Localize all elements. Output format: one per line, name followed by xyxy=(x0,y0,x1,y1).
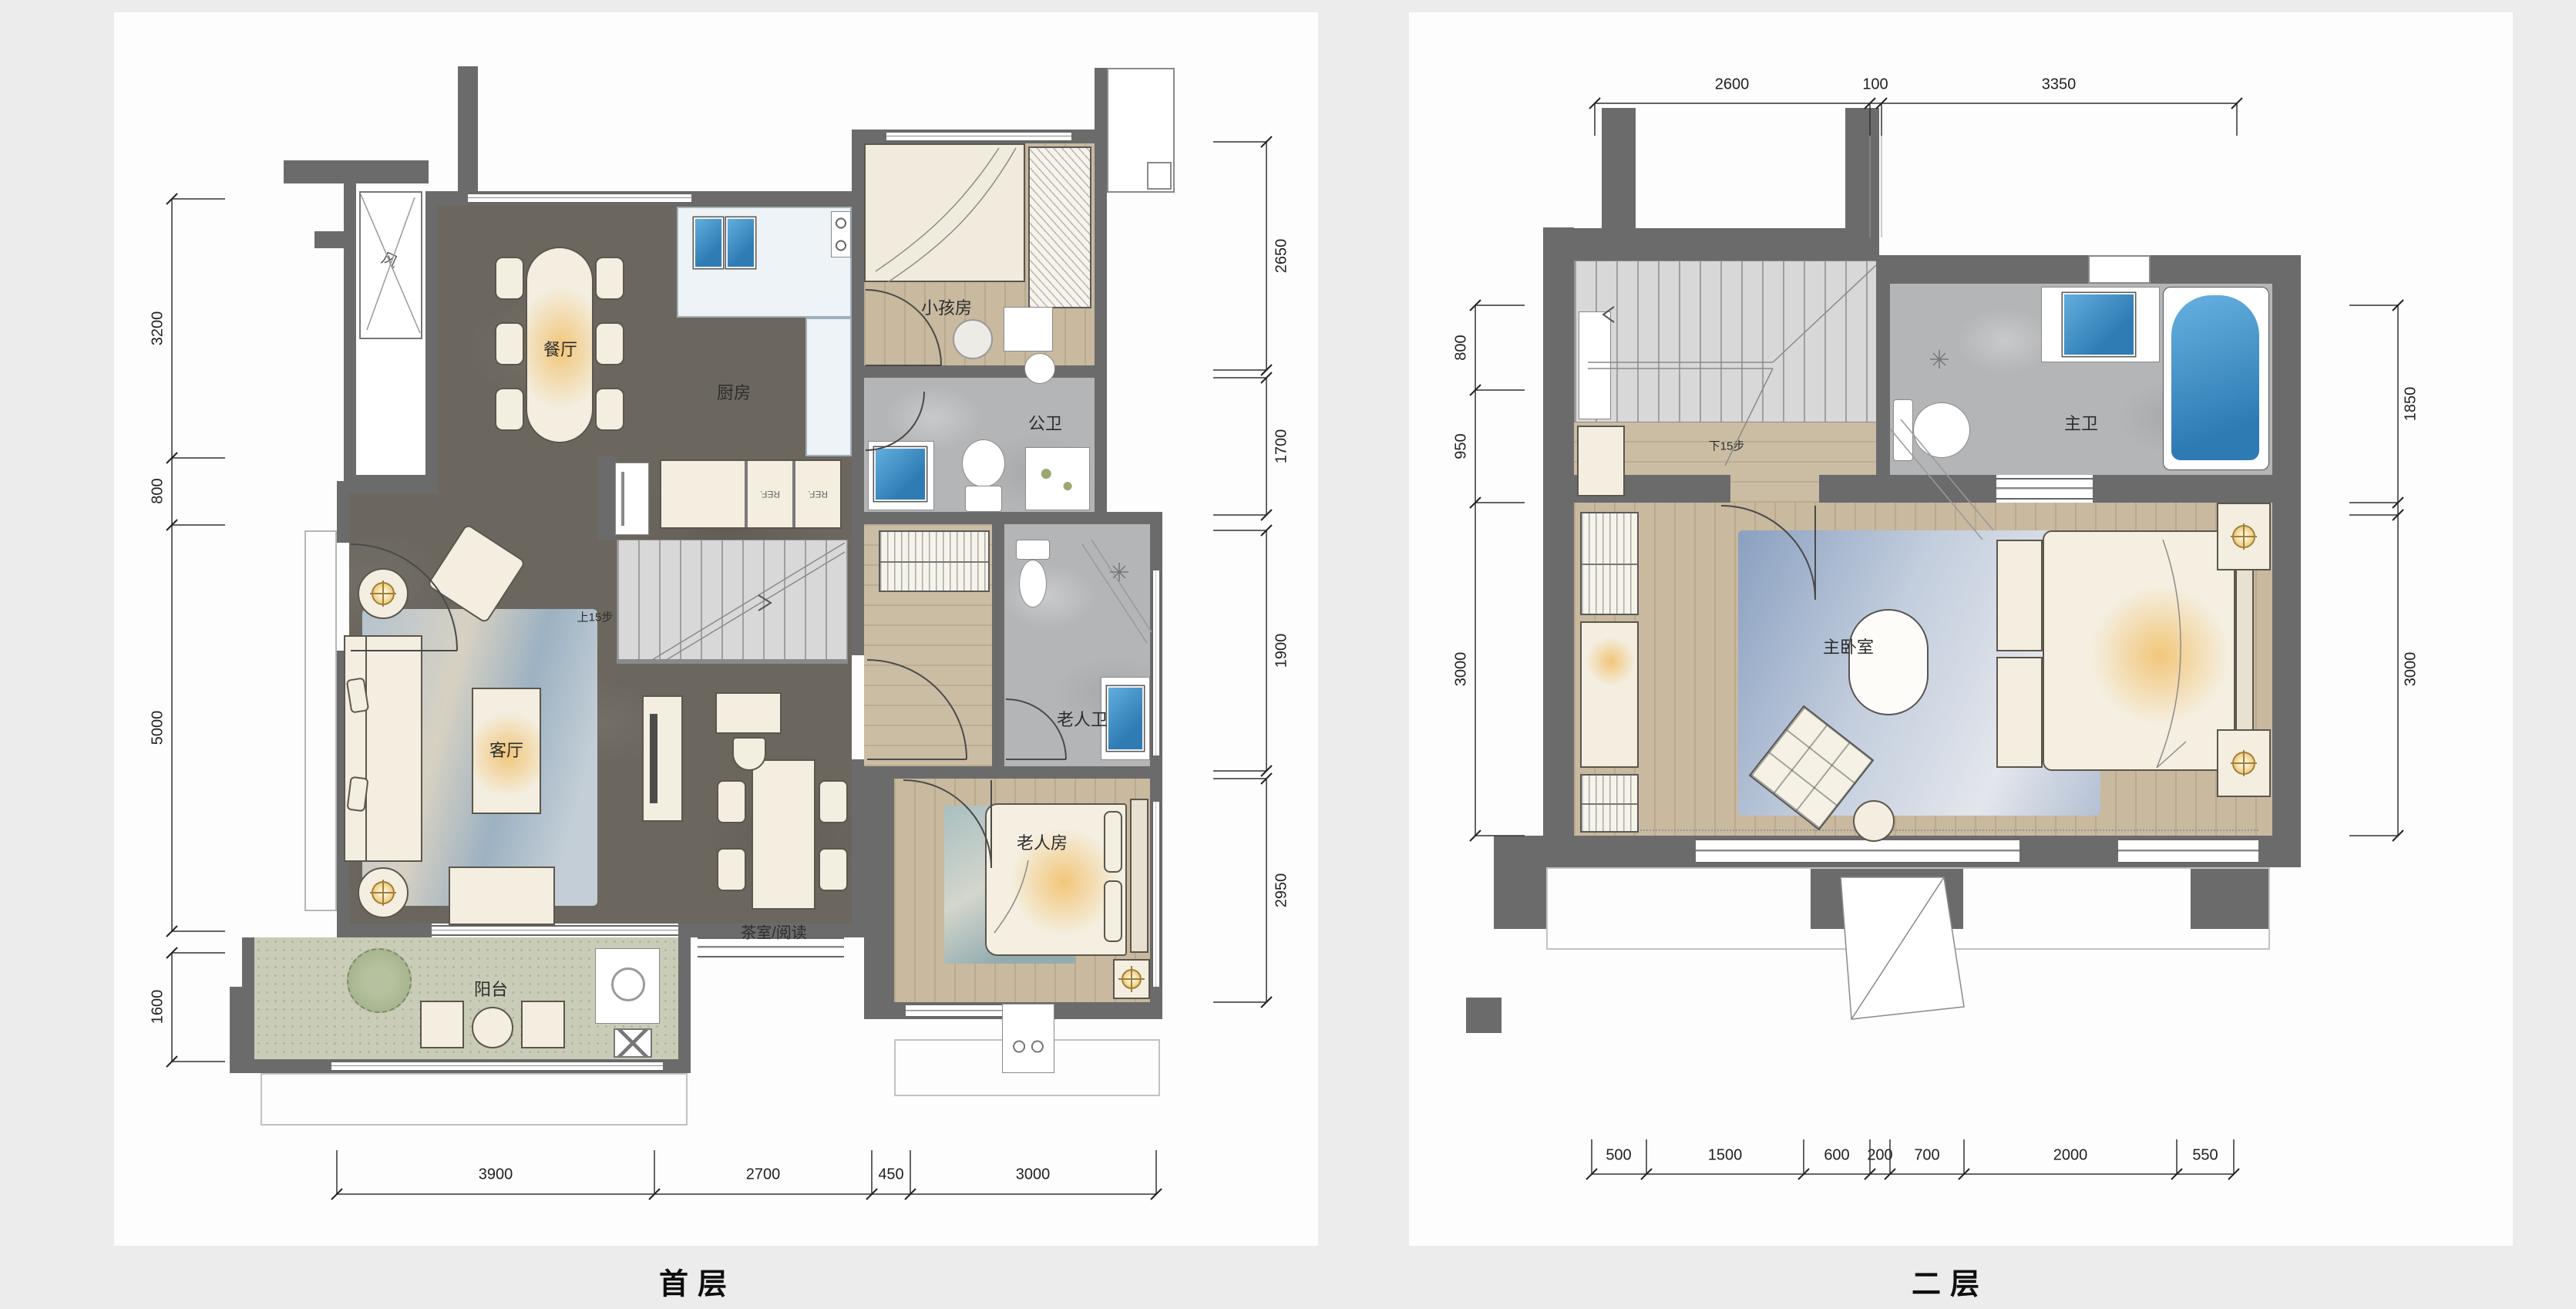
dim-label: 1850 xyxy=(2403,387,2420,422)
elder-bath-sink xyxy=(1107,686,1144,751)
wall xyxy=(2093,475,2301,503)
reading-desk xyxy=(715,692,782,734)
room-label-public-bath: 公卫 xyxy=(1028,410,1062,435)
wall xyxy=(1574,228,1879,261)
bedroom-window xyxy=(1696,839,2019,863)
toilet-bowl xyxy=(962,439,1005,487)
floorplan-sheet: REF. REF. xyxy=(0,0,2576,1309)
bed-glow xyxy=(2090,586,2229,725)
balcony-window xyxy=(331,1061,663,1072)
tall-cabinet xyxy=(615,463,649,535)
stool xyxy=(1853,800,1895,842)
wall xyxy=(337,493,349,543)
kitchen-hob-small xyxy=(831,211,851,257)
dim-label: 2600 xyxy=(1715,76,1750,94)
wall xyxy=(314,231,344,248)
wall xyxy=(344,475,429,487)
floor1-title: 首层 xyxy=(659,1260,736,1303)
dining-chair xyxy=(495,257,524,300)
floor-drain xyxy=(614,1028,652,1058)
dim-label: 2650 xyxy=(1273,239,1291,274)
dim-label: 700 xyxy=(1914,1147,1939,1165)
dining-window xyxy=(468,193,691,204)
toilet-bowl xyxy=(1913,402,1970,458)
kids-wardrobe xyxy=(1028,146,1091,308)
wall xyxy=(425,191,438,493)
room-label-tea: 茶室/阅读 xyxy=(741,920,807,943)
elder-dresser xyxy=(1002,1004,1054,1073)
dim-label: 3200 xyxy=(150,311,167,346)
dim-label: 100 xyxy=(1862,76,1888,94)
wall xyxy=(852,143,864,655)
wall xyxy=(1466,998,1502,1033)
wall xyxy=(1095,68,1107,130)
room-label-kitchen: 厨房 xyxy=(717,379,751,404)
dim-label: 600 xyxy=(1824,1147,1849,1165)
dim-label: 3350 xyxy=(2042,76,2077,94)
balcony-chair xyxy=(420,1001,464,1048)
wall xyxy=(337,924,432,937)
dim-label: 3000 xyxy=(1016,1166,1051,1184)
table-lamp-icon xyxy=(372,881,395,904)
dim-label: 2000 xyxy=(2053,1147,2088,1165)
wall-stub xyxy=(1845,108,1879,255)
dining-chair xyxy=(595,388,624,431)
wall xyxy=(992,524,1004,779)
balcony-chair xyxy=(521,1001,565,1048)
wall xyxy=(678,937,691,1059)
cabinet-divider xyxy=(792,461,795,527)
tea-table xyxy=(752,759,816,910)
room-label-master-bedroom: 主卧室 xyxy=(1823,634,1874,658)
toilet-tank xyxy=(1016,540,1050,560)
wall xyxy=(1543,227,1574,867)
tv-screen xyxy=(650,714,657,803)
tea-chair xyxy=(819,848,848,891)
pillow xyxy=(1104,880,1122,942)
wardrobe xyxy=(1580,512,1639,615)
dim-label: 1600 xyxy=(150,990,167,1025)
fridge-label: REF. xyxy=(760,489,780,500)
tea-chair xyxy=(819,780,848,823)
dim-label: 500 xyxy=(1606,1147,1631,1165)
master-bed xyxy=(2043,530,2235,771)
kitchen-side-counter xyxy=(805,318,852,456)
bed-bench xyxy=(1996,657,2043,768)
wall-stub xyxy=(1602,108,1636,228)
stairs-down-label: 下15步 xyxy=(1709,438,1745,454)
dim-label: 3900 xyxy=(479,1166,513,1184)
wall xyxy=(344,183,356,487)
dim-label: 3000 xyxy=(1453,652,1471,687)
balcony-table xyxy=(472,1007,513,1048)
plant xyxy=(347,948,412,1013)
bay-window-sill xyxy=(304,530,337,911)
wall xyxy=(864,766,1150,779)
room-label-living: 客厅 xyxy=(489,737,523,762)
dim-label: 550 xyxy=(2192,1147,2218,1165)
corridor-closet xyxy=(879,530,990,592)
dim-label: 2950 xyxy=(1273,873,1291,908)
cabinet-handle xyxy=(621,472,624,526)
nightstand-lamp-icon xyxy=(1122,969,1142,989)
washing-machine xyxy=(595,948,660,1024)
sofa-back-line xyxy=(365,637,367,860)
stair-side-shelf xyxy=(1579,311,1611,419)
roof-outline-balcony xyxy=(261,1073,688,1126)
bathtub-water xyxy=(2171,295,2259,460)
dim-label: 1500 xyxy=(1708,1147,1743,1165)
stairs-up-label: 上15步 xyxy=(577,609,614,625)
cabinet-divider xyxy=(745,461,748,527)
nightstand xyxy=(1113,959,1150,999)
room-label-master-bath: 主卫 xyxy=(2064,410,2098,435)
toilet-tank xyxy=(1893,399,1913,461)
wall xyxy=(458,66,478,205)
stairs1-floor xyxy=(617,540,848,660)
wall xyxy=(1095,130,1107,518)
nightstand-lamp-icon xyxy=(2232,752,2255,775)
wall-column xyxy=(597,456,617,540)
dim-label: 2700 xyxy=(746,1166,781,1184)
wall xyxy=(1876,261,1890,475)
wall xyxy=(1819,475,1996,503)
desk-chair xyxy=(732,737,766,771)
kids-window xyxy=(886,131,1071,142)
dresser xyxy=(1580,621,1639,768)
nightstand xyxy=(2217,503,2271,570)
dim-label: 950 xyxy=(1453,433,1471,459)
master-bath-sink xyxy=(2063,293,2135,356)
public-bath-sink xyxy=(874,447,926,501)
toilet-bowl xyxy=(1019,560,1047,607)
room-label-balcony: 阳台 xyxy=(474,976,508,1001)
kids-bed xyxy=(864,143,1025,282)
wall xyxy=(2272,284,2301,867)
wall xyxy=(1494,836,1546,929)
roof-outline xyxy=(1546,867,2270,950)
side-table xyxy=(358,568,409,619)
wall xyxy=(864,365,1095,378)
room-label-kids: 小孩房 xyxy=(921,294,972,319)
bath-window xyxy=(2088,255,2151,284)
dining-chair xyxy=(595,257,624,300)
ac-unit xyxy=(1147,162,1172,190)
sofa xyxy=(344,635,422,862)
dim-label: 1900 xyxy=(1273,634,1291,668)
dining-chair xyxy=(495,322,524,365)
wall xyxy=(284,160,429,183)
toilet-tank xyxy=(965,486,1002,512)
balcony-sliding-door xyxy=(432,925,678,936)
kitchen-sink-bowl xyxy=(726,217,755,268)
side-table xyxy=(358,867,409,918)
kids-desk xyxy=(1004,307,1053,352)
kids-rug xyxy=(953,319,993,359)
room-label-dining: 餐厅 xyxy=(543,336,577,361)
dim-label: 200 xyxy=(1867,1147,1892,1165)
wall xyxy=(230,987,254,1073)
nightstand xyxy=(2217,729,2271,797)
headboard xyxy=(1130,799,1148,953)
stairs2-floor xyxy=(1574,261,1879,422)
elder-bath-window xyxy=(1152,570,1161,755)
dim-label: 1700 xyxy=(1273,429,1291,464)
pillow xyxy=(1104,811,1122,873)
kids-chair xyxy=(1024,353,1055,384)
room-label-elder-bath: 老人卫 xyxy=(1057,706,1108,731)
dim-label: 800 xyxy=(1453,335,1471,360)
table-lamp-icon xyxy=(372,582,395,605)
bedroom-table xyxy=(1848,609,1929,715)
dim-label: 800 xyxy=(150,478,167,503)
washer-drum xyxy=(611,967,645,1001)
kitchen-sink-bowl xyxy=(694,217,723,268)
ottoman xyxy=(449,866,555,925)
bath-door-sill xyxy=(1996,478,2093,500)
fridge-label: REF. xyxy=(808,489,828,500)
nightstand-lamp-icon xyxy=(2232,525,2255,548)
hall-cabinet xyxy=(1577,426,1625,496)
dresser-glow xyxy=(1586,637,1636,686)
stair-edge xyxy=(617,660,848,664)
wardrobe xyxy=(1580,774,1639,833)
bath-vanity xyxy=(1025,447,1090,510)
tea-chair xyxy=(717,780,746,823)
dim-label: 5000 xyxy=(150,711,167,745)
room-label-elder-room: 老人房 xyxy=(1017,829,1068,854)
elder-room-window xyxy=(906,1004,1002,1018)
curtain-line xyxy=(1588,829,2258,831)
dim-label: 450 xyxy=(878,1166,903,1184)
wall xyxy=(852,759,864,924)
tv-console xyxy=(642,695,683,822)
elder-room-side-window xyxy=(1152,802,1161,987)
tea-chair xyxy=(717,848,746,891)
floor2-title: 二层 xyxy=(1912,1260,1989,1303)
bedroom-window xyxy=(2118,839,2258,863)
dining-chair xyxy=(495,388,524,431)
dining-chair xyxy=(595,322,624,365)
bathtub xyxy=(2163,287,2269,470)
bed-bench xyxy=(1996,540,2043,651)
wall xyxy=(864,779,894,1002)
dim-label: 3000 xyxy=(2403,652,2420,687)
